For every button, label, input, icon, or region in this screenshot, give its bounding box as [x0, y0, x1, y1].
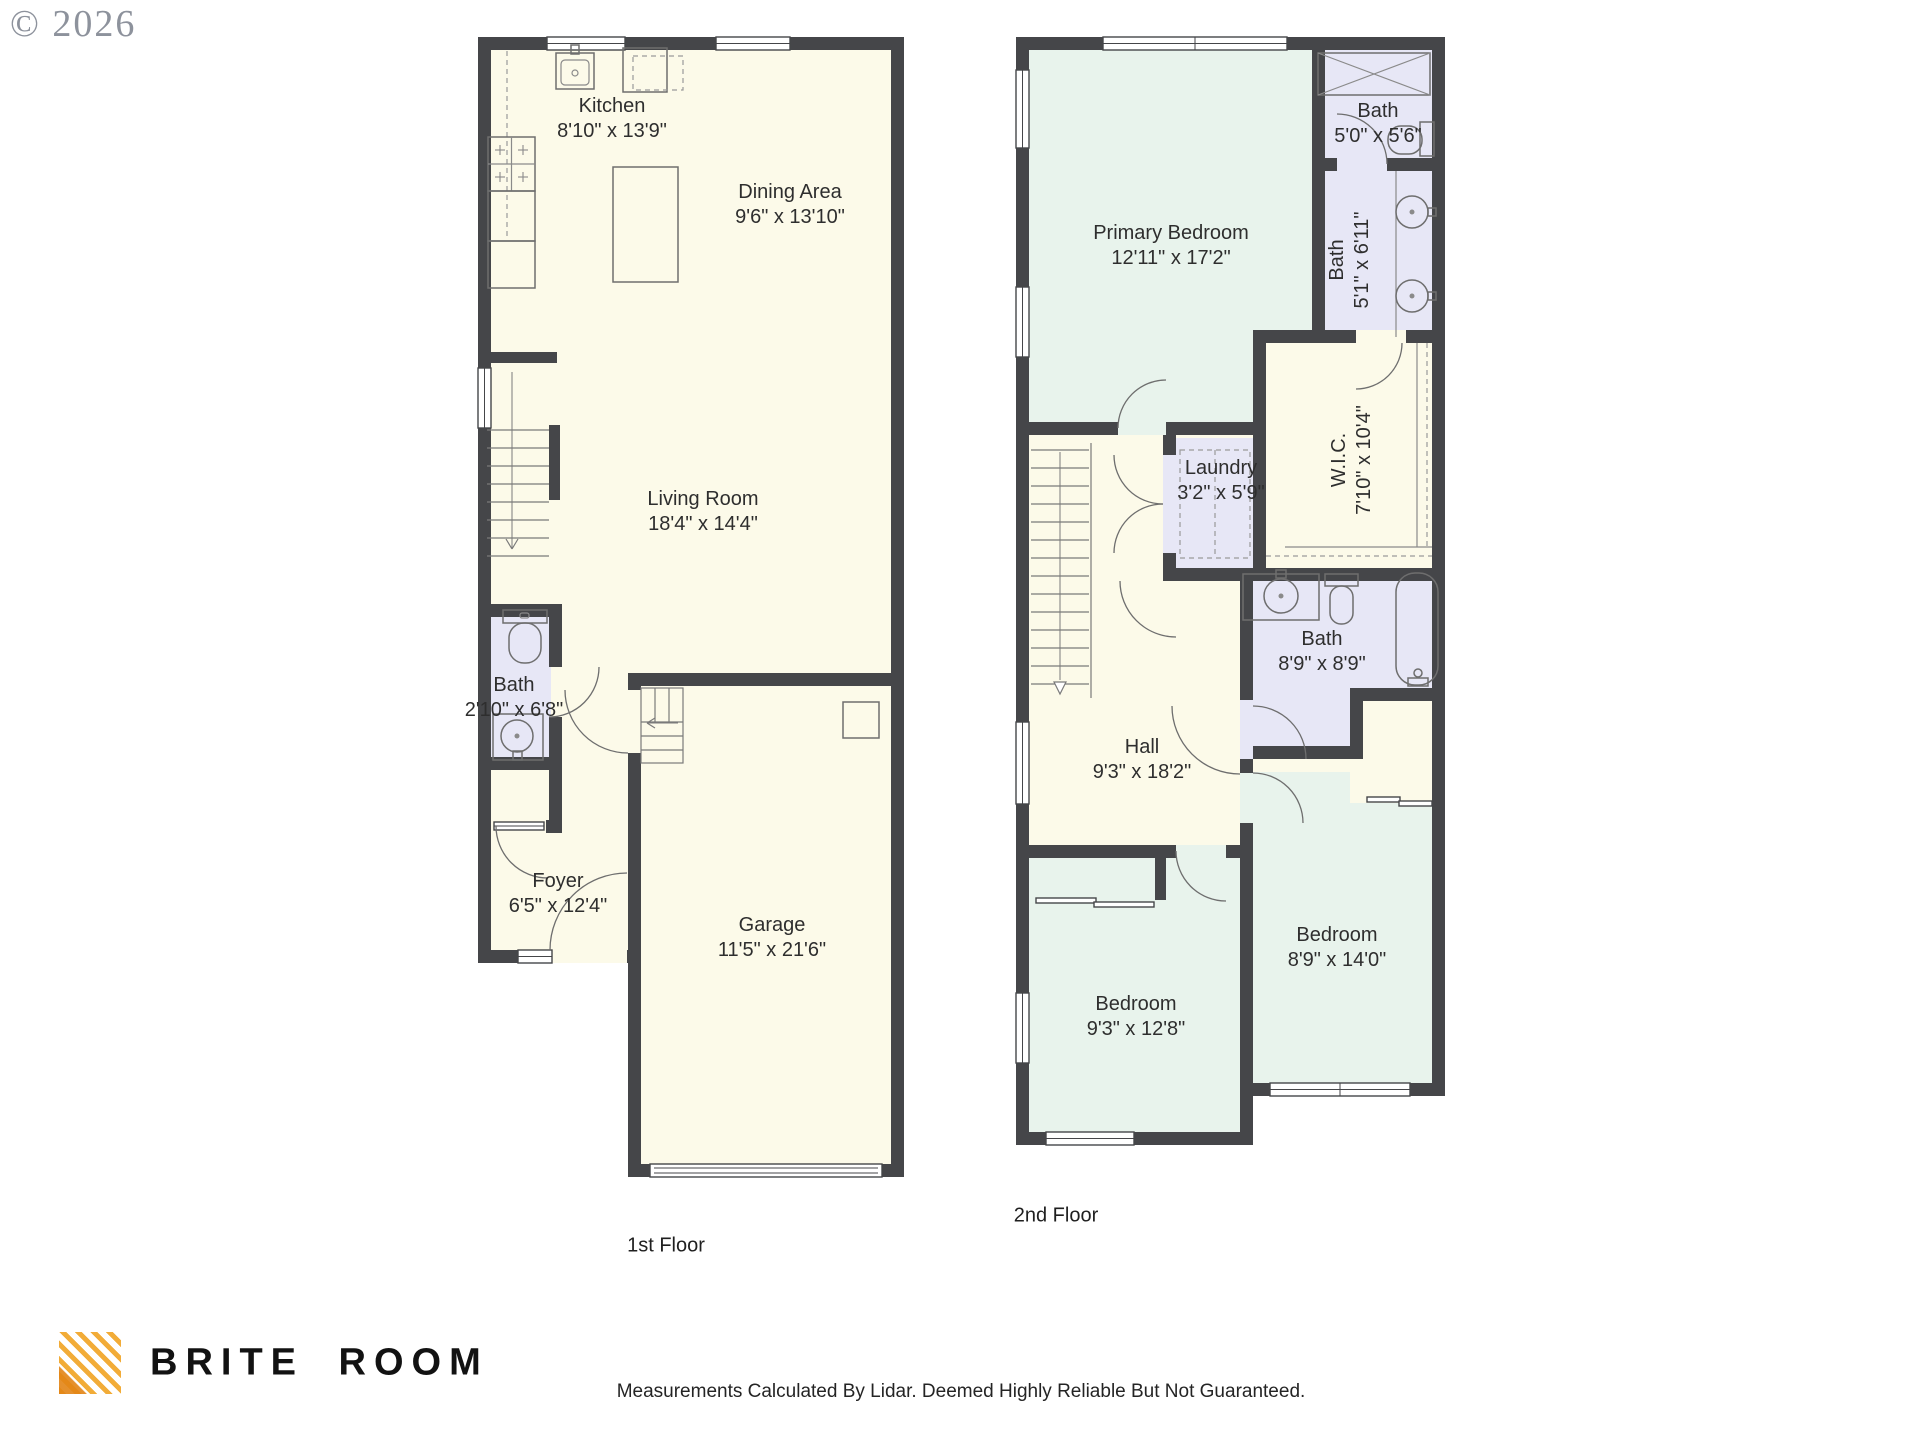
room-label-dining-area: Dining Area9'6" x 13'10"	[735, 180, 845, 230]
room-label-living-room: Living Room18'4" x 14'4"	[647, 487, 758, 537]
room-label-bath-hall: Bath8'9" x 8'9"	[1278, 627, 1365, 677]
garage-door	[650, 1164, 882, 1177]
brite-room-logo-icon	[59, 1332, 121, 1394]
floorplan-image: © 2026 Kitchen8'10" x 13'9" Dining Area9…	[0, 0, 1920, 1440]
room-label-bath-upper: Bath5'0" x 5'6"	[1334, 99, 1421, 149]
disclaimer-text: Measurements Calculated By Lidar. Deemed…	[617, 1381, 1306, 1403]
room-label-wic: W.I.C.7'10" x 10'4"	[1327, 405, 1377, 515]
room-label-garage: Garage11'5" x 21'6"	[718, 913, 826, 963]
brite-room-logo-text: BRITE ROOM	[150, 1342, 489, 1385]
floorplan-drawing	[0, 0, 1920, 1440]
room-label-laundry: Laundry3'2" x 5'9"	[1177, 456, 1264, 506]
room-label-primary-bedroom: Primary Bedroom12'11" x 17'2"	[1093, 221, 1249, 271]
floor2-caption: 2nd Floor	[1014, 1205, 1099, 1228]
copyright-year: © 2026	[10, 2, 136, 46]
floor2-plan	[1016, 37, 1445, 1145]
room-label-bedroom1: Bedroom9'3" x 12'8"	[1087, 992, 1186, 1042]
floor1-caption: 1st Floor	[627, 1235, 705, 1258]
room-label-bath-ensuite: Bath5'1" x 6'11"	[1325, 211, 1375, 308]
room-label-kitchen: Kitchen8'10" x 13'9"	[557, 94, 667, 144]
room-label-foyer: Foyer6'5" x 12'4"	[509, 869, 608, 919]
room-label-bedroom2: Bedroom8'9" x 14'0"	[1288, 923, 1387, 973]
room-label-hall: Hall9'3" x 18'2"	[1093, 735, 1192, 785]
room-label-bath-floor1: Bath2'10" x 6'8"	[465, 673, 564, 723]
